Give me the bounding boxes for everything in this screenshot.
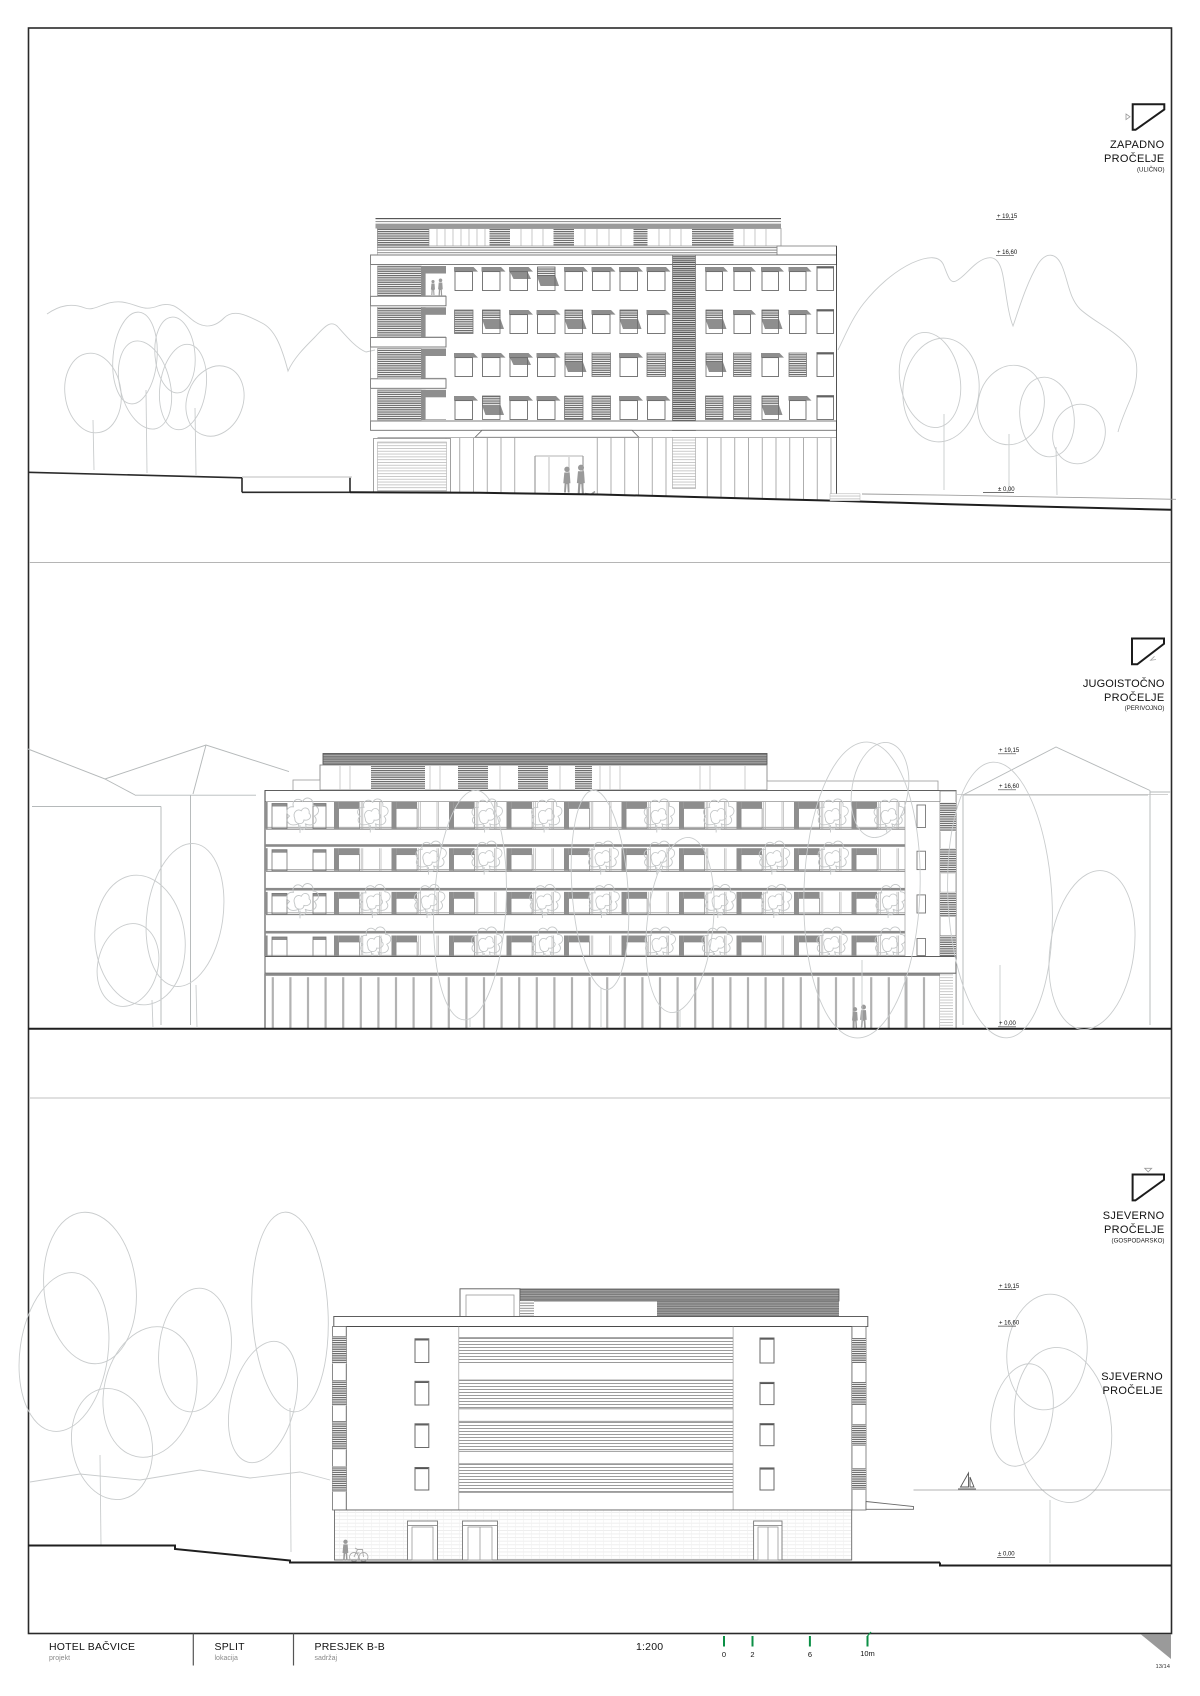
svg-text:+ 19,15: + 19,15 [999,748,1020,754]
svg-text:SPLIT: SPLIT [215,1641,246,1653]
svg-text:± 0,00: ± 0,00 [998,487,1015,493]
svg-text:SJEVERNO: SJEVERNO [1103,1210,1165,1222]
svg-text:+ 16,60: + 16,60 [999,784,1020,790]
svg-text:+ 0,00: + 0,00 [999,1021,1017,1027]
svg-text:ZAPADNO: ZAPADNO [1110,139,1165,151]
svg-text:6: 6 [808,1650,812,1659]
svg-text:HOTEL BAČVICE: HOTEL BAČVICE [49,1640,135,1653]
svg-text:PROČELJE: PROČELJE [1104,1223,1164,1236]
svg-text:lokacija: lokacija [215,1655,238,1662]
svg-text:PROČELJE: PROČELJE [1104,691,1164,704]
svg-text:SJEVERNO: SJEVERNO [1101,1371,1163,1383]
svg-text:PROČELJE: PROČELJE [1104,152,1164,165]
svg-text:(PERIVOJNO): (PERIVOJNO) [1125,705,1165,712]
svg-text:sadržaj: sadržaj [315,1655,338,1662]
svg-text:1:200: 1:200 [636,1641,663,1653]
svg-text:+ 19,15: + 19,15 [999,1284,1020,1290]
svg-text:projekt: projekt [49,1655,70,1662]
svg-text:± 0,00: ± 0,00 [998,1552,1015,1558]
svg-text:2: 2 [750,1650,754,1659]
svg-text:0: 0 [722,1650,726,1659]
svg-text:JUGOISTOČNO: JUGOISTOČNO [1083,677,1165,690]
svg-text:PRESJEK B-B: PRESJEK B-B [315,1641,385,1653]
svg-text:+ 16,60: + 16,60 [999,1321,1020,1327]
svg-text:13/14: 13/14 [1155,1664,1170,1670]
svg-text:+ 19,15: + 19,15 [997,214,1018,220]
svg-text:PROČELJE: PROČELJE [1103,1384,1163,1397]
svg-text:(GOSPODARSKO): (GOSPODARSKO) [1112,1238,1165,1245]
svg-text:10m: 10m [860,1649,875,1658]
svg-text:(ULIČNO): (ULIČNO) [1137,166,1165,173]
svg-text:+ 16,60: + 16,60 [997,250,1018,256]
